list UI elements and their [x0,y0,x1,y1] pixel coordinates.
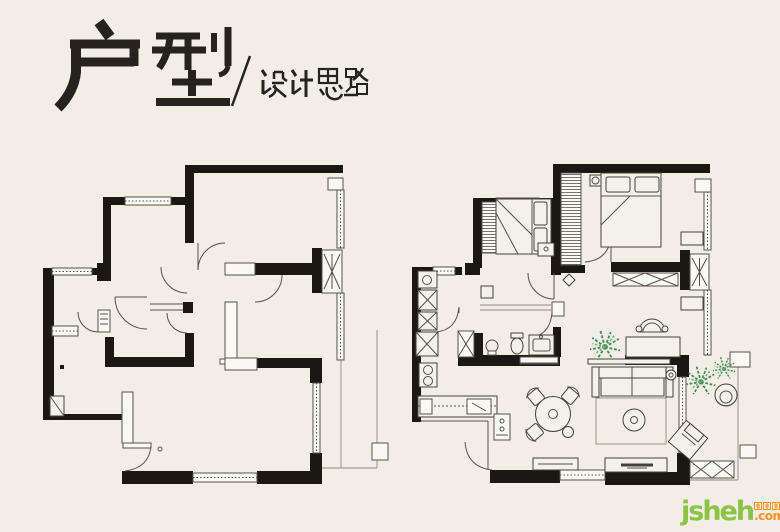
second-bedroom [481,199,554,298]
tall-cabinet [458,331,474,357]
subtitle-char-ji [292,70,313,97]
nightstand [538,243,554,256]
storage-cabinet [613,273,678,286]
plant-icon [590,331,620,360]
watermark-brand: jsheh [681,499,753,525]
windows [52,190,344,482]
watermark-suffix: .com [754,511,780,522]
papasan-chair [715,384,737,406]
entry [494,414,510,440]
walls [43,165,343,484]
console-table [588,359,670,364]
fixtures [50,178,343,416]
compass-diamond [563,274,575,286]
storage-box [690,461,734,478]
site-watermark: jsheh 聚设汇 .com [681,499,780,525]
sink-icon [486,340,498,352]
sink-icon [418,271,437,288]
elevator-shaft [690,254,709,290]
side-table [481,286,493,298]
subtitle-char-lu [344,68,368,95]
title-char-hu [58,22,140,108]
desk-nook [626,319,680,357]
dining-area [523,384,582,470]
elevator-shaft [322,250,342,293]
subtitle-char-she [262,70,287,97]
counter [418,396,497,417]
wall-lamp-icon [666,370,676,380]
ac-ledge [695,179,711,192]
left-floor-plan [40,150,392,490]
sofa [592,367,673,397]
bedside-table [681,232,703,245]
tv-cabinet [605,458,667,472]
vanity [529,335,554,355]
living-room [588,319,708,472]
hallway [421,274,575,470]
title-char-xing [152,27,230,102]
tub-chair [636,319,668,332]
right-floor-plan [408,155,764,490]
toilet-icon [511,333,523,354]
title-slash [232,56,250,106]
plant-icon [687,367,716,395]
bed [601,173,661,247]
light-partitions [98,263,257,443]
title-calligraphy [50,10,380,115]
coffee-table [623,409,645,431]
poster-page: 户型 设计思路 [0,0,780,532]
balcony [687,352,756,480]
armchair [668,420,707,459]
bedside-table [681,297,703,310]
stool [563,427,574,438]
stove-icon [419,363,437,387]
subtitle-char-si [319,69,342,99]
balcony-outline [322,330,388,468]
ac-ledge [328,178,343,190]
